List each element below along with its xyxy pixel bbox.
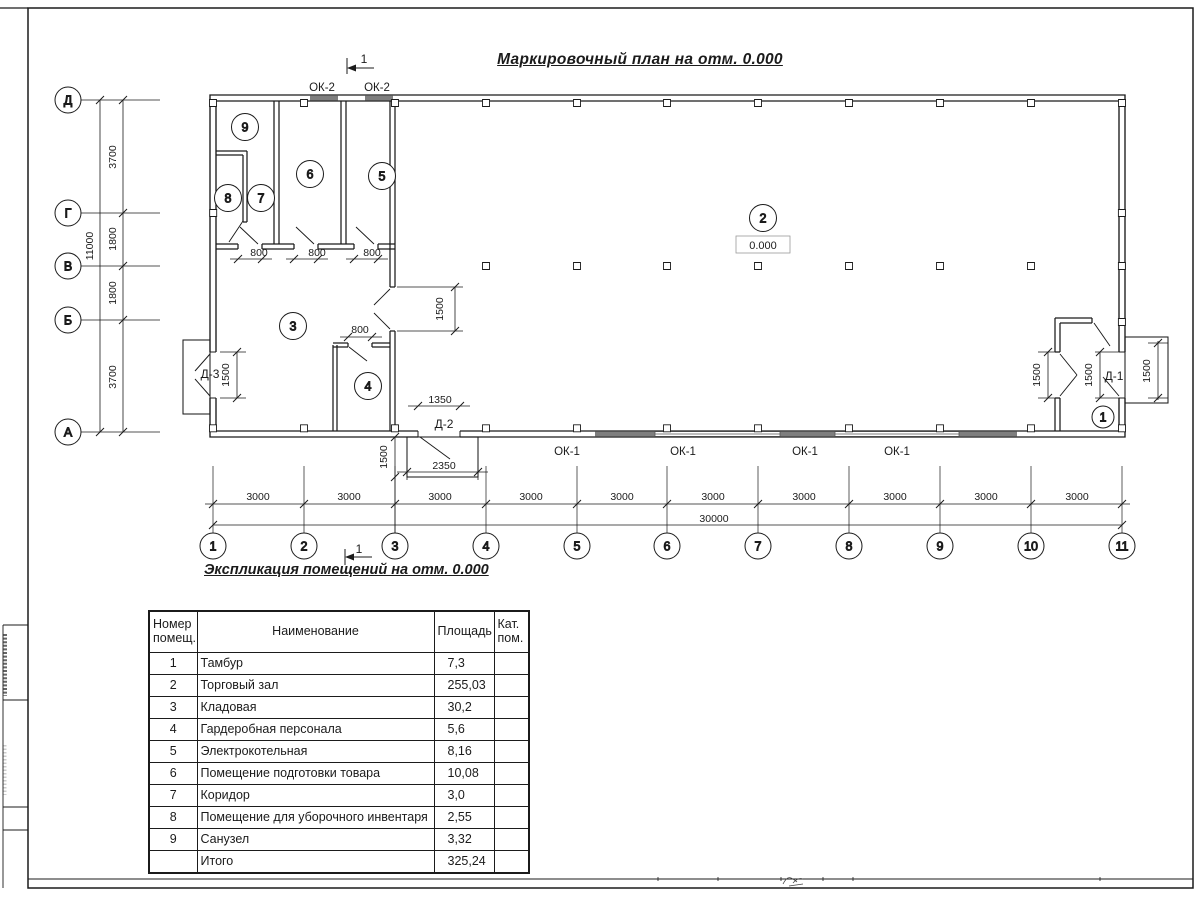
room-number-4-label: 4 xyxy=(365,379,372,393)
dim-1500-tambour: 1500 xyxy=(1031,363,1043,387)
dim-1800-upper: 1800 xyxy=(107,227,119,251)
section-mark-bottom: 1 xyxy=(356,542,363,556)
room-row: 7Коридор3,0 xyxy=(149,785,529,807)
dim-3700-bottom: 3700 xyxy=(107,365,119,389)
cell-room-area: 255,03 xyxy=(434,675,494,697)
dim-3000-8: 3000 xyxy=(883,491,907,503)
room-row: 9Санузел3,32 xyxy=(149,829,529,851)
dim-800-3: 800 xyxy=(363,247,381,259)
axis-number-9-label: 9 xyxy=(937,539,944,553)
cell-room-category xyxy=(494,741,529,763)
cell-room-category xyxy=(494,697,529,719)
axis-number-4-label: 4 xyxy=(483,539,490,553)
cell-room-number: 6 xyxy=(149,763,197,785)
dim-800-2: 800 xyxy=(308,247,326,259)
room-row: 6Помещение подготовки товара10,08 xyxy=(149,763,529,785)
room-row: 1Тамбур7,3 xyxy=(149,653,529,675)
cell-room-area: 7,3 xyxy=(434,653,494,675)
cell-room-number: 2 xyxy=(149,675,197,697)
dim-3000-9: 3000 xyxy=(974,491,998,503)
room-number-5-label: 5 xyxy=(379,169,386,183)
cell-room-category xyxy=(494,851,529,874)
door-label-d2: Д-2 xyxy=(435,417,454,431)
cell-room-name: Электрокотельная xyxy=(197,741,434,763)
dim-800-1: 800 xyxy=(250,247,268,259)
door-label-d1: Д-1 xyxy=(1105,369,1124,383)
axis-number-10-label: 10 xyxy=(1024,539,1038,553)
header-room-area: Площадь xyxy=(434,611,494,653)
plan-circles: ДГВБА1234567891011987653421 xyxy=(55,87,1135,559)
header-room-category: Кат. пом. xyxy=(494,611,529,653)
dim-3000-3: 3000 xyxy=(428,491,452,503)
cell-room-number: 5 xyxy=(149,741,197,763)
cell-room-area: 325,24 xyxy=(434,851,494,874)
cell-room-number: 3 xyxy=(149,697,197,719)
dim-11000: 11000 xyxy=(84,232,96,261)
axis-letter-А-label: А xyxy=(64,425,73,439)
section-mark-top: 1 xyxy=(361,52,368,66)
axis-number-7-label: 7 xyxy=(755,539,762,553)
axis-number-3-label: 3 xyxy=(392,539,399,553)
window-label-ok1-1: ОК-1 xyxy=(554,446,580,458)
section-marks xyxy=(345,58,374,565)
cell-room-area: 30,2 xyxy=(434,697,494,719)
window-ok1-b xyxy=(780,432,835,437)
cell-room-name: Тамбур xyxy=(197,653,434,675)
axis-number-2-label: 2 xyxy=(301,539,308,553)
cell-room-name: Торговый зал xyxy=(197,675,434,697)
cell-room-name: Итого xyxy=(197,851,434,874)
cell-room-category xyxy=(494,653,529,675)
cell-room-number xyxy=(149,851,197,874)
window-label-ok1-4: ОК-1 xyxy=(884,446,910,458)
room-row: 5Электрокотельная8,16 xyxy=(149,741,529,763)
cell-room-area: 10,08 xyxy=(434,763,494,785)
dim-3000-2: 3000 xyxy=(337,491,361,503)
signature-scribble xyxy=(783,878,803,886)
dim-800-4: 800 xyxy=(351,324,369,336)
level-mark: 0.000 xyxy=(749,240,777,252)
room-number-2-label: 2 xyxy=(760,211,767,225)
cell-room-area: 8,16 xyxy=(434,741,494,763)
cell-room-name: Помещение для уборочного инвентаря xyxy=(197,807,434,829)
dim-30000: 30000 xyxy=(699,513,728,525)
dim-1500-d2: 1500 xyxy=(378,445,390,469)
window-label-ok2-1: ОК-2 xyxy=(309,82,335,94)
cell-room-number: 7 xyxy=(149,785,197,807)
cell-room-area: 3,32 xyxy=(434,829,494,851)
window-ok1-c xyxy=(959,432,1017,437)
cell-room-name: Санузел xyxy=(197,829,434,851)
cell-room-area: 5,6 xyxy=(434,719,494,741)
window-ok1-a xyxy=(595,432,655,437)
cell-room-category xyxy=(494,807,529,829)
axis-letter-Г-label: Г xyxy=(65,206,72,220)
axis-number-1-label: 1 xyxy=(210,539,217,553)
axis-number-5-label: 5 xyxy=(574,539,581,553)
dim-2350: 2350 xyxy=(432,460,456,472)
axis-number-6-label: 6 xyxy=(664,539,671,553)
window-ok2-b xyxy=(365,96,393,101)
cell-room-number: 8 xyxy=(149,807,197,829)
cell-room-category xyxy=(494,719,529,741)
room-row: Итого325,24 xyxy=(149,851,529,874)
dim-3000-6: 3000 xyxy=(701,491,725,503)
cell-room-category xyxy=(494,829,529,851)
window-ok2-a xyxy=(310,96,338,101)
room-row: 8Помещение для уборочного инвентаря2,55 xyxy=(149,807,529,829)
structural-columns xyxy=(210,100,1126,432)
room-number-3-label: 3 xyxy=(290,319,297,333)
dim-1500-porch: 1500 xyxy=(1141,359,1153,383)
cell-room-number: 9 xyxy=(149,829,197,851)
cell-room-name: Кладовая xyxy=(197,697,434,719)
axis-number-8-label: 8 xyxy=(846,539,853,553)
door-label-d3: Д-3 xyxy=(201,367,220,381)
room-row: 4Гардеробная персонала5,6 xyxy=(149,719,529,741)
table-title: Экспликация помещений на отм. 0.000 xyxy=(204,562,489,578)
cell-room-category xyxy=(494,675,529,697)
cell-room-name: Коридор xyxy=(197,785,434,807)
window-label-ok2-2: ОК-2 xyxy=(364,82,390,94)
cell-room-area: 2,55 xyxy=(434,807,494,829)
axis-letter-В-label: В xyxy=(64,259,72,273)
room-table-header-row: Номер помещ. Наименование Площадь Кат. п… xyxy=(149,611,529,653)
room-table-body: 1Тамбур7,32Торговый зал255,033Кладовая30… xyxy=(149,653,529,874)
dim-3000-7: 3000 xyxy=(792,491,816,503)
header-room-number: Номер помещ. xyxy=(149,611,197,653)
cell-room-number: 1 xyxy=(149,653,197,675)
room-number-7-label: 7 xyxy=(258,191,265,205)
dim-1800-lower: 1800 xyxy=(107,281,119,305)
cell-room-name: Помещение подготовки товара xyxy=(197,763,434,785)
axis-number-11-label: 11 xyxy=(1116,539,1129,553)
left-axis-lines xyxy=(81,100,160,432)
dimension-ticks xyxy=(96,96,1162,529)
dim-3700-top: 3700 xyxy=(107,145,119,169)
room-row: 2Торговый зал255,03 xyxy=(149,675,529,697)
bottom-dim-lines xyxy=(205,504,1130,525)
drawing-sheet: ДГВБА1234567891011987653421 370018001800… xyxy=(0,0,1200,900)
dimension-lines xyxy=(81,100,1168,533)
dim-1350: 1350 xyxy=(428,394,452,406)
dim-1500-d3: 1500 xyxy=(220,363,232,387)
cell-room-number: 4 xyxy=(149,719,197,741)
dim-1500-hall-door: 1500 xyxy=(434,297,446,321)
dim-3000-4: 3000 xyxy=(519,491,543,503)
cell-room-name: Гардеробная персонала xyxy=(197,719,434,741)
room-number-1-label: 1 xyxy=(1100,410,1107,424)
dim-1500-d1: 1500 xyxy=(1083,363,1095,387)
cell-room-category xyxy=(494,785,529,807)
window-label-ok1-2: ОК-1 xyxy=(670,446,696,458)
header-room-name: Наименование xyxy=(197,611,434,653)
cell-room-category xyxy=(494,763,529,785)
axis-letter-Б-label: Б xyxy=(64,313,72,327)
axis-letter-Д-label: Д xyxy=(64,93,73,107)
cell-room-area: 3,0 xyxy=(434,785,494,807)
interior-walls xyxy=(216,101,1092,431)
room-number-9-label: 9 xyxy=(242,120,249,134)
page-title: Маркировочный план на отм. 0.000 xyxy=(440,51,840,69)
room-schedule-table: Номер помещ. Наименование Площадь Кат. п… xyxy=(148,610,530,874)
dim-3000-5: 3000 xyxy=(610,491,634,503)
room-row: 3Кладовая30,2 xyxy=(149,697,529,719)
room-number-6-label: 6 xyxy=(307,167,314,181)
window-label-ok1-3: ОК-1 xyxy=(792,446,818,458)
room-number-8-label: 8 xyxy=(225,191,232,205)
dim-3000-1: 3000 xyxy=(246,491,270,503)
dim-3000-10: 3000 xyxy=(1065,491,1089,503)
